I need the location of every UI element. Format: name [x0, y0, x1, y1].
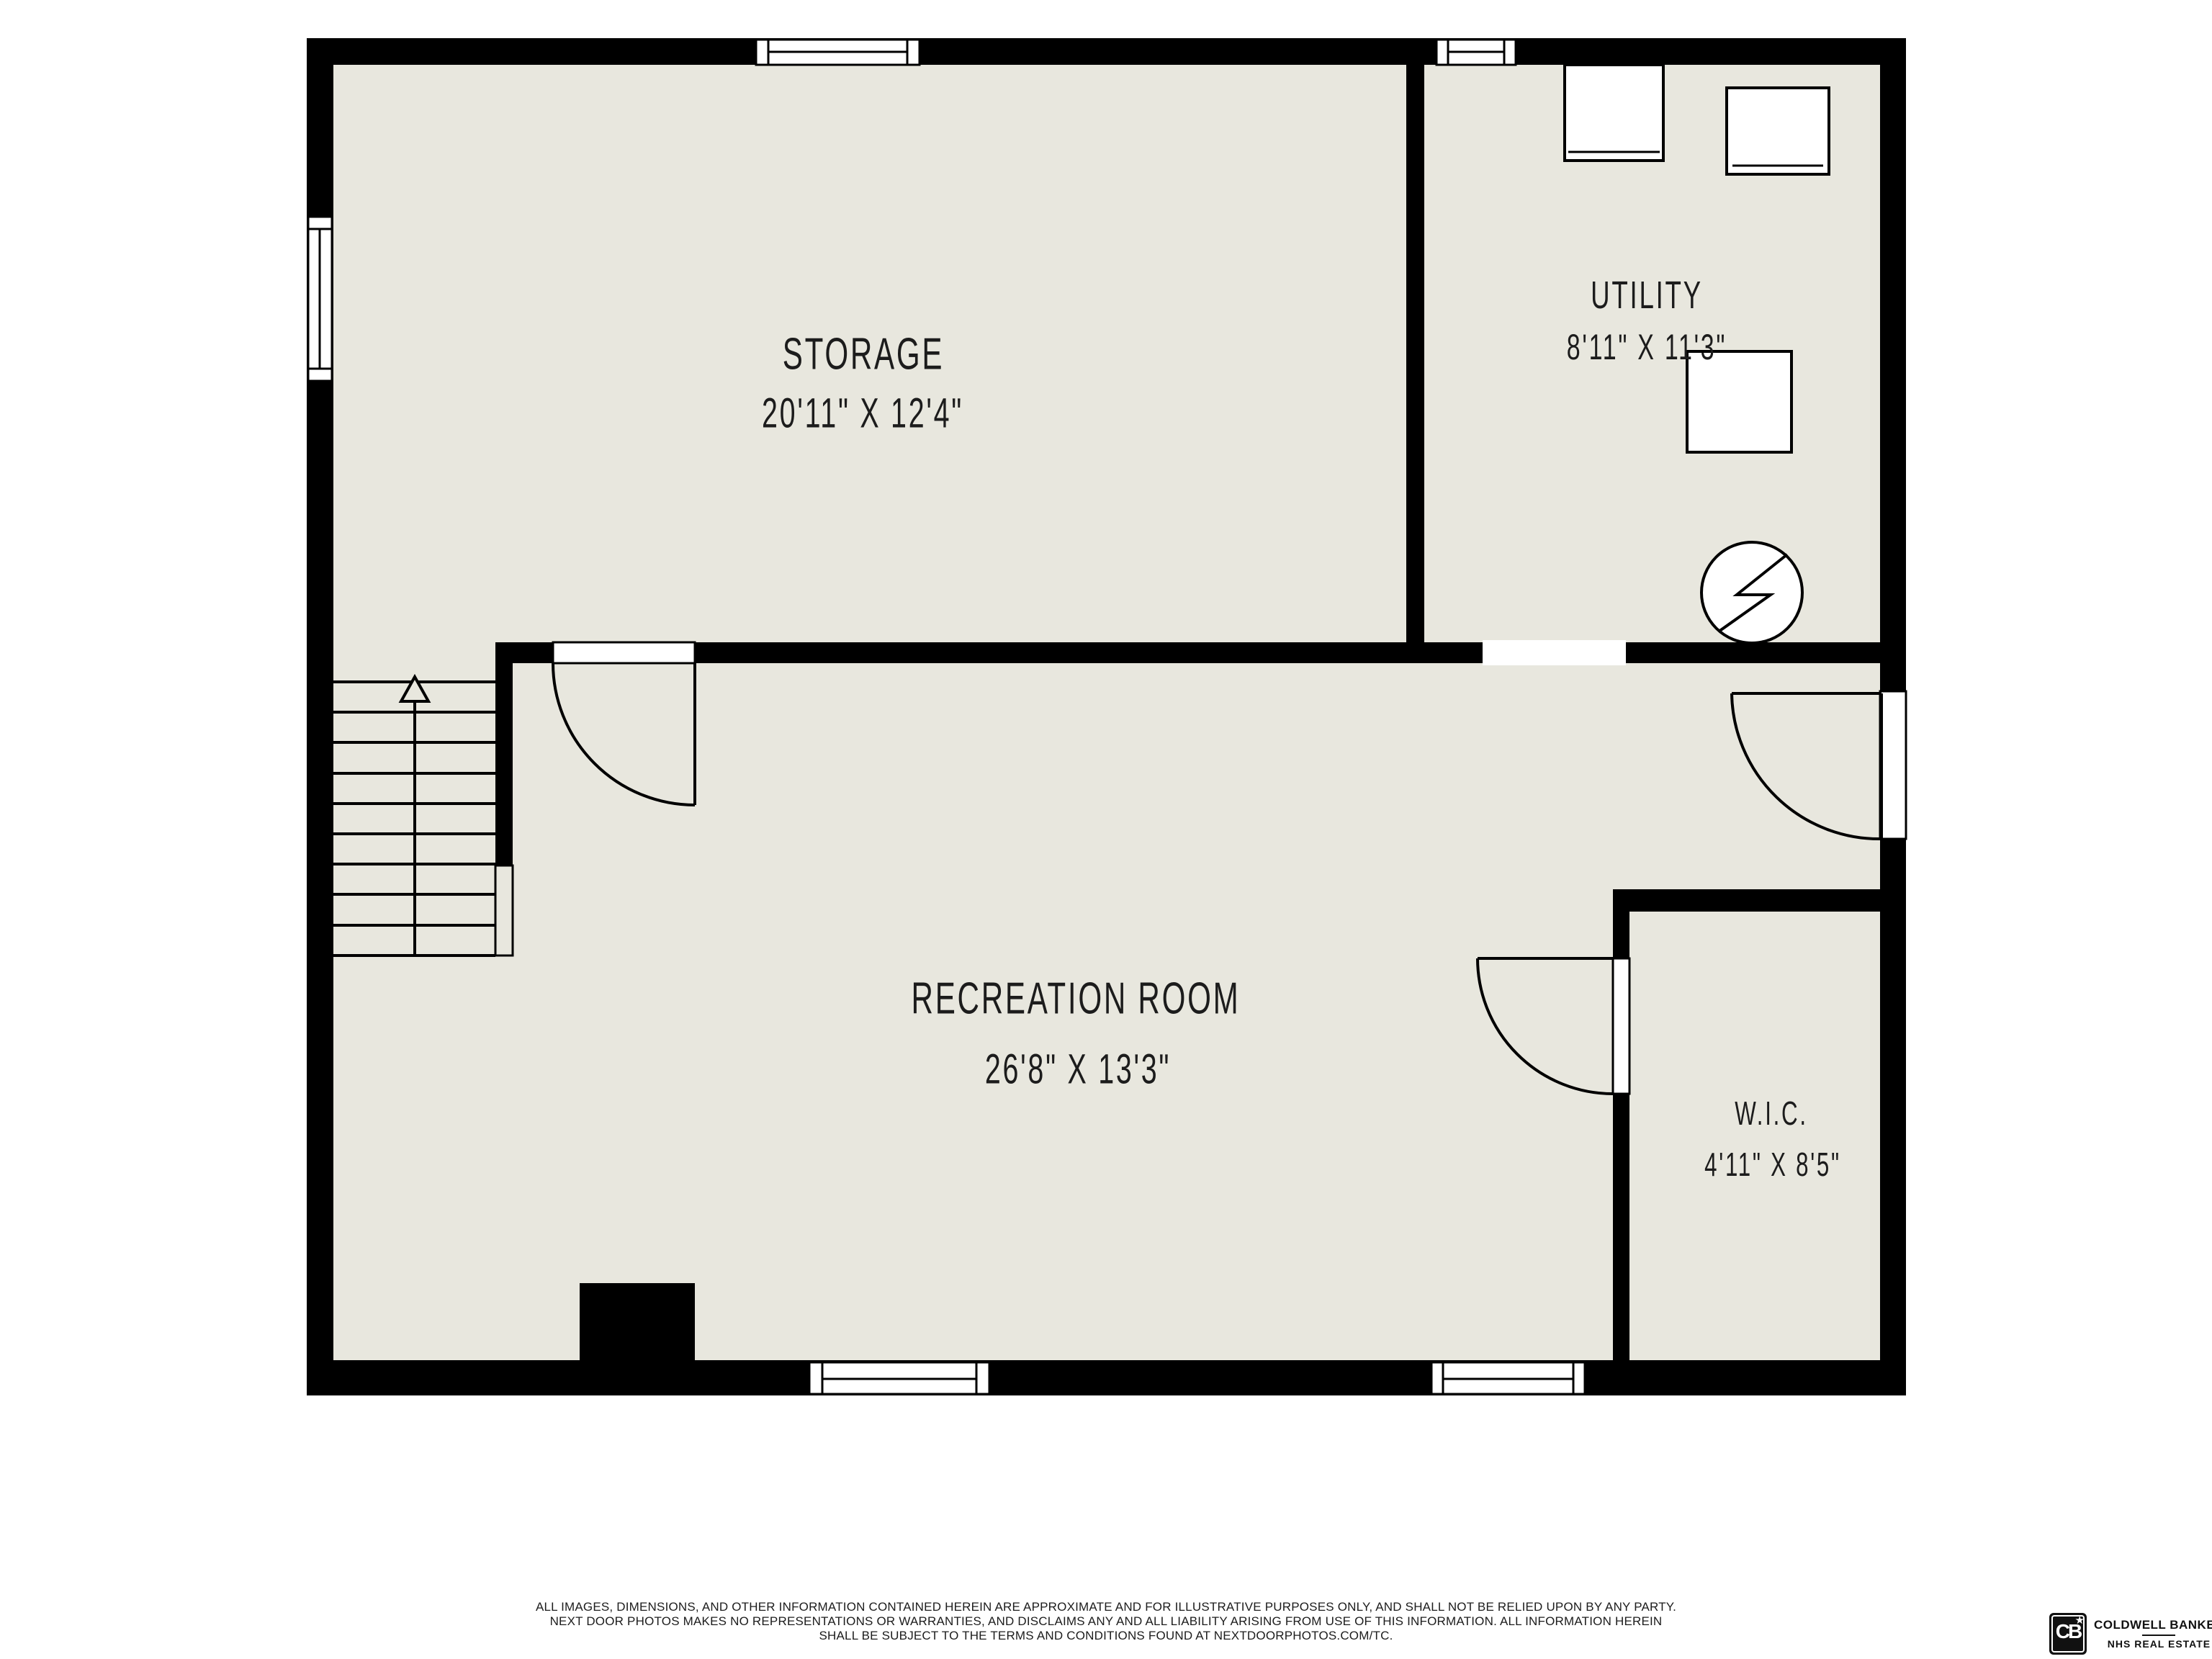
floor-area [333, 65, 1880, 1360]
appliance-icon-1 [1565, 65, 1663, 161]
window-icon-top-storage [756, 40, 920, 65]
room-label-storage: STORAGE [783, 329, 944, 380]
disclaimer-line-2: NEXT DOOR PHOTOS MAKES NO REPRESENTATION… [0, 1614, 2212, 1629]
window-icon-left-storage [308, 217, 332, 381]
star-icon: ★ [2075, 1614, 2085, 1627]
room-dimensions-utility: 8'11" X 11'3" [1567, 326, 1727, 368]
room-dimensions-storage: 20'11" X 12'4" [762, 390, 963, 438]
room-label-recreation: RECREATION ROOM [912, 974, 1241, 1025]
disclaimer-line-1: ALL IMAGES, DIMENSIONS, AND OTHER INFORM… [0, 1600, 2212, 1614]
cb-logo-icon: CB ★ [2049, 1613, 2087, 1655]
coldwell-banker-logo: CB ★ COLDWELL BANKER NHS REAL ESTATE [2049, 1613, 2212, 1655]
door-opening-storage [553, 642, 695, 663]
window-icon-top-utility [1437, 40, 1516, 65]
appliance-icon-2 [1727, 88, 1829, 174]
water-heater-icon [1701, 542, 1802, 643]
disclaimer-line-3: SHALL BE SUBJECT TO THE TERMS AND CONDIT… [0, 1629, 2212, 1643]
room-dimensions-wic: 4'11" X 8'5" [1704, 1145, 1841, 1184]
stair-railing [495, 866, 513, 956]
cased-opening-utility [1483, 640, 1626, 665]
chimney-stub [580, 1283, 695, 1360]
window-icon-bottom-right [1431, 1362, 1585, 1394]
door-opening-right [1880, 691, 1906, 839]
brand-sub-name: NHS REAL ESTATE [2094, 1638, 2212, 1650]
door-opening-wic [1613, 958, 1629, 1094]
floorplan-page: STORAGE 20'11" X 12'4" UTILITY 8'11" X 1… [0, 0, 2212, 1659]
brand-name: COLDWELL BANKER [2094, 1618, 2212, 1632]
room-label-wic: W.I.C. [1735, 1094, 1807, 1133]
floorplan-drawing [0, 0, 2212, 1659]
room-label-utility: UTILITY [1591, 273, 1703, 318]
brand-text-block: COLDWELL BANKER NHS REAL ESTATE [2094, 1618, 2212, 1650]
disclaimer-text: ALL IMAGES, DIMENSIONS, AND OTHER INFORM… [0, 1600, 2212, 1643]
brand-divider [2142, 1635, 2175, 1636]
window-icon-bottom-center [809, 1362, 989, 1394]
room-dimensions-recreation: 26'8" X 13'3" [985, 1046, 1171, 1094]
